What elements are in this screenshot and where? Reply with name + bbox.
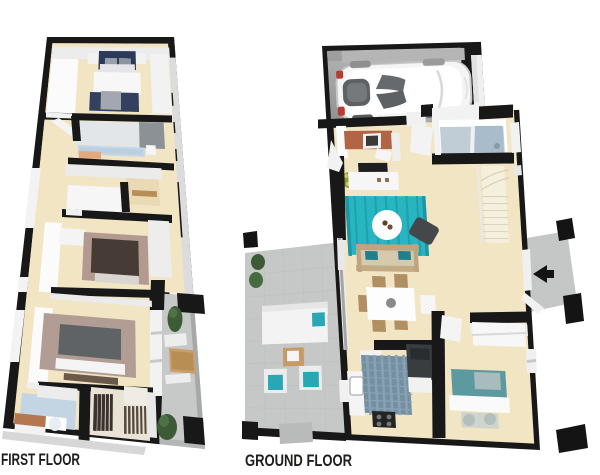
svg-text:FIRST FLOOR: FIRST FLOOR <box>1 451 80 469</box>
svg-text:GROUND FLOOR: GROUND FLOOR <box>245 452 352 470</box>
